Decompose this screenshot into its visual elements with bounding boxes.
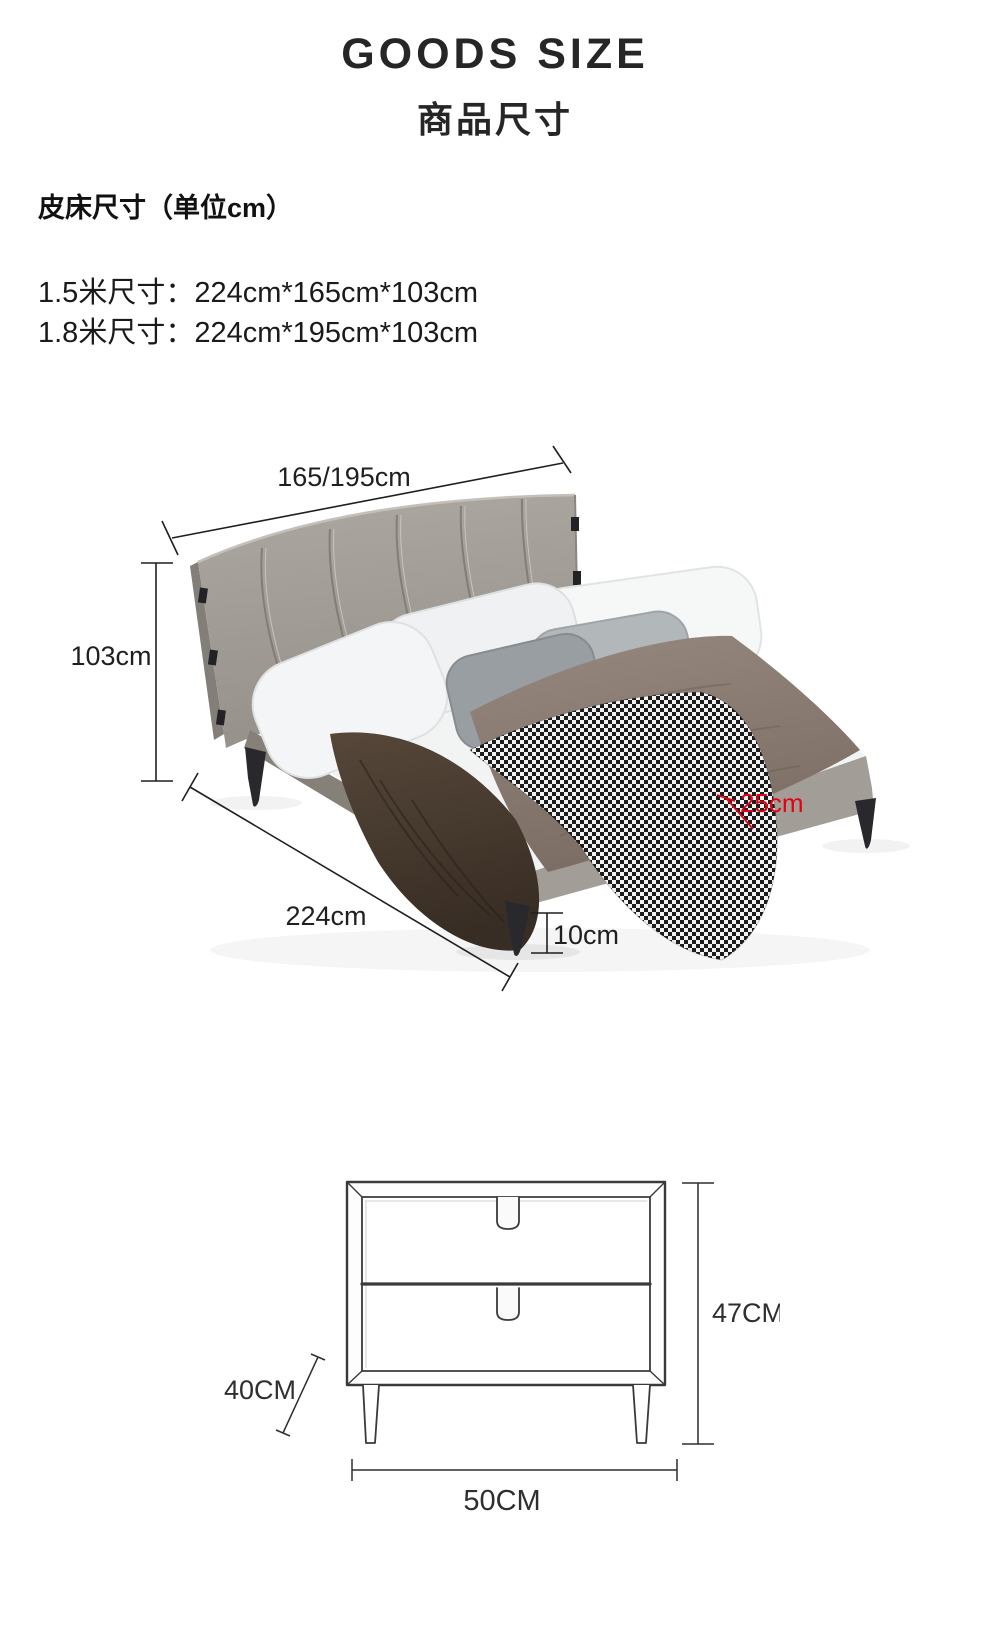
bed-specs-intro: 皮床尺寸（单位cm）	[38, 186, 478, 225]
bed-size-line-2: 1.8米尺寸：224cm*195cm*103cm	[38, 313, 478, 353]
bed-size-line-1: 1.5米尺寸：224cm*165cm*103cm	[38, 273, 478, 313]
bed-rail-height-label: 25cm	[740, 788, 804, 818]
goods-size-page: GOODS SIZE 商品尺寸 皮床尺寸（单位cm） 1.5米尺寸：224cm*…	[0, 0, 990, 1636]
page-title: GOODS SIZE	[0, 30, 990, 79]
bed-height-dimension-line	[141, 563, 173, 781]
nightstand-width-dimension-line	[352, 1459, 677, 1481]
nightstand-height-label: 47CM	[712, 1298, 780, 1328]
bed-size-figure: 165/195cm 103cm 224cm 10cm 25cm	[0, 400, 990, 1020]
nightstand-size-figure: 47CM 40CM 50CM	[170, 1120, 780, 1540]
bed-height-label: 103cm	[70, 641, 151, 671]
bed-length-label: 224cm	[285, 901, 366, 931]
nightstand-width-label: 50CM	[463, 1485, 540, 1517]
nightstand-height-dimension-line	[682, 1183, 714, 1444]
nightstand-leg-left	[363, 1385, 379, 1443]
nightstand-handle-bottom	[497, 1288, 519, 1320]
bed-width-label: 165/195cm	[277, 462, 411, 492]
page-subtitle: 商品尺寸	[0, 91, 990, 143]
bed-leg-height-label: 10cm	[553, 920, 619, 950]
nightstand-leg-right	[633, 1385, 650, 1443]
nightstand-handle-top	[497, 1197, 519, 1229]
nightstand-drawing	[347, 1182, 665, 1443]
page-header: GOODS SIZE 商品尺寸	[0, 0, 990, 143]
nightstand-depth-label: 40CM	[224, 1375, 296, 1405]
bed-specs: 皮床尺寸（单位cm） 1.5米尺寸：224cm*165cm*103cm 1.8米…	[38, 186, 478, 353]
